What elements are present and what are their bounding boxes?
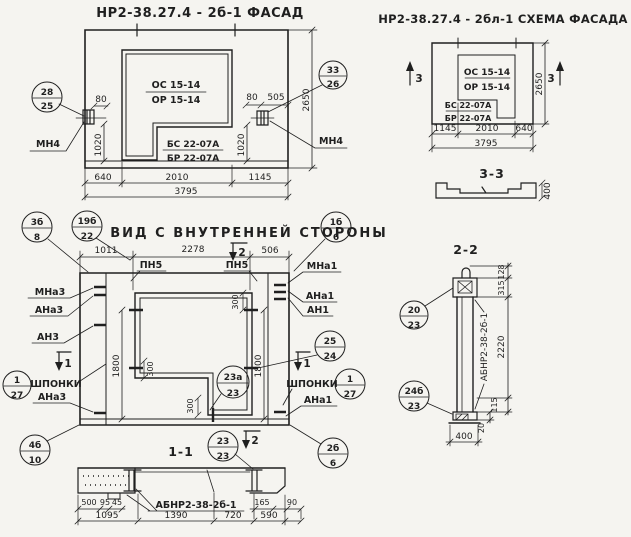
- scheme-window-mark-top: ОС 15-14: [464, 68, 510, 78]
- callout-num: 23: [217, 437, 230, 447]
- sec22-top-detail-hatch: [458, 281, 472, 293]
- callout-sheet: 6: [333, 233, 339, 243]
- sec11-right-block: [250, 468, 285, 493]
- sec22-lifting-loop: [462, 268, 470, 278]
- facade-title: НР2-38.27.4 - 2б-1 ФАСАД: [96, 6, 304, 21]
- inner-label-an1: АН1: [307, 305, 329, 316]
- scheme-window-mark-bottom: ОР 15-14: [464, 83, 510, 93]
- marker-arrow: [55, 362, 63, 371]
- callout-leader: [290, 425, 321, 444]
- marker-label: 2: [251, 435, 258, 447]
- inner-dim-300a: 300: [231, 294, 240, 309]
- callout-num: 1: [14, 376, 20, 386]
- facade-dim-505: 505: [267, 93, 284, 103]
- drawing-sheet: НР2-38.27.4 - 2б-1 ФАСАД ОС 15-14 ОР 15-…: [0, 0, 631, 537]
- inner-left-band-anchors: [94, 287, 106, 413]
- section-3-3-label: 3-3: [479, 166, 505, 181]
- scheme-dim-640: 640: [515, 124, 532, 134]
- scheme-sill-mark-bottom: БР 22-07А: [445, 114, 492, 123]
- callout-sheet: 10: [29, 456, 42, 466]
- sec22-bottom-detail: [453, 412, 477, 420]
- inner-dim-300b: 300: [146, 361, 155, 376]
- inner-label-ana1-2-leader: [286, 406, 337, 416]
- scheme-view: НР2-38.27.4 - 2бл-1 СХЕМА ФАСАДА ОС 15-1…: [378, 12, 627, 201]
- facade-dim-3795: 3795: [175, 187, 198, 197]
- callout-24b-23: 24б 23: [399, 381, 452, 414]
- inner-label-an3: АН3: [37, 332, 59, 343]
- inner-marker-2-top: 2: [229, 243, 247, 261]
- section-3-3-dim-400: 400: [543, 182, 553, 199]
- sec11-dim-720: 720: [224, 511, 241, 521]
- section-1-1-label: 1-1: [168, 444, 194, 459]
- marker-arrow: [294, 362, 302, 371]
- inner-label-mna3: МНа3: [35, 287, 65, 298]
- callout-leader: [427, 403, 452, 414]
- callout-num: 24б: [405, 386, 424, 397]
- inner-label-pn5-left: ПН5: [140, 260, 163, 271]
- sec22-dim-315: 315: [497, 280, 506, 295]
- callout-num: 23а: [224, 373, 243, 383]
- sec11-dim-45: 45: [112, 498, 122, 507]
- inner-label-mna1-leader: [288, 272, 341, 283]
- sec11-dim-1390: 1390: [165, 511, 188, 521]
- facade-sill-mark-top: БС 22-07А: [167, 140, 219, 150]
- section-1-1: 1-1 23 23 АБНР2-38-2б-1 500 95 45 165 90…: [75, 431, 304, 525]
- callout-1-27-right: 1 27: [335, 369, 365, 400]
- callout-leader: [210, 394, 221, 410]
- sec22-dim-128: 128: [497, 264, 506, 279]
- marker-label: 3: [547, 73, 554, 85]
- scheme-dim-3795: 3795: [475, 139, 498, 149]
- inner-marker-2-bottom: 2: [242, 431, 260, 449]
- inner-marker-1-left: 1: [55, 352, 72, 371]
- sec11-break-line: [207, 470, 214, 492]
- callout-sheet: 6: [330, 459, 336, 469]
- facade-dim-1020-left: 1020: [94, 133, 104, 156]
- sec22-dim-2220: 2220: [497, 335, 507, 358]
- callout-leader: [47, 425, 79, 441]
- sec22-dim-115: 115: [490, 397, 499, 412]
- sec22-body-edges: [457, 297, 473, 412]
- callout-num: 20: [408, 306, 421, 316]
- inner-dim-1011: 1011: [95, 246, 118, 256]
- callout-leader: [425, 288, 453, 306]
- inner-label-shponki-left: ШПОНКИ: [30, 379, 81, 390]
- callout-leader: [59, 104, 84, 116]
- callout-sheet: 23: [408, 321, 421, 331]
- inner-label-ana1-2: АНа1: [304, 395, 332, 406]
- inner-view: ВИД С ВНУТРЕННЕЙ СТОРОНЫ 3б 8 19б 22 1б …: [3, 211, 388, 469]
- facade-label-mn4-left: МН4: [36, 139, 60, 150]
- facade-label-mn4-right: МН4: [319, 136, 343, 147]
- sec11-left-block: [78, 468, 135, 493]
- callout-1-27-left: 1 27: [3, 371, 31, 401]
- marker-label: 3: [415, 73, 422, 85]
- sec11-dim-590: 590: [260, 511, 277, 521]
- facade-view: НР2-38.27.4 - 2б-1 ФАСАД ОС 15-14 ОР 15-…: [30, 6, 347, 200]
- callout-num: 28: [41, 88, 54, 98]
- facade-dim-1145: 1145: [249, 173, 272, 183]
- facade-dim-1020-right: 1020: [237, 133, 247, 156]
- sec11-dim-500: 500: [81, 498, 96, 507]
- sec11-dim-1095: 1095: [96, 511, 119, 521]
- inner-panel-outline: [80, 273, 289, 425]
- sec11-dim-90: 90: [287, 498, 297, 507]
- inner-marker-1-right: 1: [294, 352, 311, 371]
- inner-label-shponki-right-leader: [283, 389, 292, 405]
- scheme-dim-1145: 1145: [434, 124, 457, 134]
- callout-num: 19б: [78, 216, 97, 227]
- inner-dim-506: 506: [261, 246, 278, 256]
- inner-label-ana1: АНа1: [306, 291, 334, 302]
- sec22-dim-400: 400: [455, 432, 472, 442]
- callout-sheet: 23: [408, 402, 421, 412]
- inner-label-shponki-right: ШПОНКИ: [286, 379, 337, 390]
- callout-num: 4б: [29, 440, 42, 451]
- callout-sheet: 24: [324, 352, 337, 362]
- callout-sheet: 27: [344, 390, 357, 400]
- inner-dim-300c-line: [195, 395, 201, 418]
- inner-label-pn5-right: ПН5: [226, 260, 249, 271]
- scheme-section-marker-left: 3: [406, 61, 423, 85]
- marker-arrow: [556, 61, 564, 71]
- callout-num: 1б: [330, 217, 343, 228]
- sec11-left-ibeam: [124, 470, 141, 491]
- scheme-section-marker-right: 3: [547, 61, 564, 85]
- sec11-dim-95: 95: [100, 498, 110, 507]
- facade-dim-80-left: 80: [95, 95, 107, 105]
- marker-label: 1: [303, 358, 310, 370]
- section-3-3-profile: [436, 183, 536, 198]
- callout-leader: [235, 454, 253, 469]
- section-2-2-label: 2-2: [453, 242, 479, 257]
- facade-dim-640: 640: [94, 173, 111, 183]
- marker-label: 2: [238, 247, 245, 259]
- callout-2b-6: 2б 6: [290, 425, 348, 469]
- callout-sheet: 8: [34, 233, 40, 243]
- callout-23a-23: 23а 23: [210, 366, 249, 410]
- facade-window-mark-top: ОС 15-14: [152, 80, 201, 91]
- facade-dim-80-right: 80: [246, 93, 258, 103]
- inner-label-mna1: МНа1: [307, 261, 337, 272]
- callout-num: 1: [347, 375, 353, 385]
- marker-arrow: [406, 61, 414, 71]
- inner-label-ana3-2-leader: [33, 403, 93, 412]
- sec11-beam-mark: АБНР2-38-2б-1: [155, 500, 236, 511]
- inner-dim-300c: 300: [186, 398, 195, 413]
- callout-sheet: 25: [41, 102, 54, 112]
- inner-label-ana3: АНа3: [35, 305, 63, 316]
- facade-window-mark-bottom: ОР 15-14: [152, 95, 201, 106]
- marker-label: 1: [64, 358, 71, 370]
- facade-dim-2010: 2010: [166, 173, 189, 183]
- callout-sheet: 23: [227, 389, 240, 399]
- facade-callout-28-25: 28 25: [32, 82, 84, 116]
- callout-4b-10: 4б 10: [20, 425, 79, 466]
- callout-sheet: 22: [81, 232, 94, 242]
- facade-dim-2650: 2650: [302, 88, 312, 111]
- inner-panel-inner-lines: [80, 273, 289, 425]
- inner-label-ana3-2: АНа3: [38, 392, 66, 403]
- callout-20-23: 20 23: [400, 288, 453, 331]
- callout-num: 2б: [327, 443, 340, 454]
- sec11-left-block-stipple: [83, 476, 131, 485]
- callout-sheet: 23: [217, 452, 230, 462]
- sec11-dim-165: 165: [254, 498, 269, 507]
- scheme-dim-2010: 2010: [476, 124, 499, 134]
- inner-dim-1800l: 1800: [112, 354, 122, 377]
- facade-sill-mark-bottom: БР 22-07А: [167, 154, 219, 164]
- callout-num: 33: [327, 66, 340, 76]
- callout-sheet: 27: [11, 391, 24, 401]
- callout-num: 25: [324, 337, 337, 347]
- sec22-bottom-detail-hatch: [456, 414, 468, 420]
- scheme-title: НР2-38.27.4 - 2бл-1 СХЕМА ФАСАДА: [378, 12, 627, 26]
- marker-arrow: [242, 440, 250, 449]
- section-2-2: 2-2 АБНР2-38-2б-1 128 315 2220 115 20 40…: [399, 242, 512, 446]
- inner-label-shponki-left-leader: [77, 364, 106, 383]
- callout-sheet: 26: [327, 80, 340, 90]
- inner-dim-1800r: 1800: [254, 354, 264, 377]
- sec22-beam-mark: АБНР2-38-2б-1: [480, 313, 490, 381]
- inner-dim-2278: 2278: [182, 245, 205, 255]
- inner-right-band-anchors: [274, 285, 286, 412]
- sec11-right-ibeam: [246, 470, 262, 491]
- scheme-sill-mark-top: БС 22-07А: [445, 101, 492, 110]
- scheme-dim-2650: 2650: [535, 72, 545, 95]
- callout-num: 3б: [31, 217, 44, 228]
